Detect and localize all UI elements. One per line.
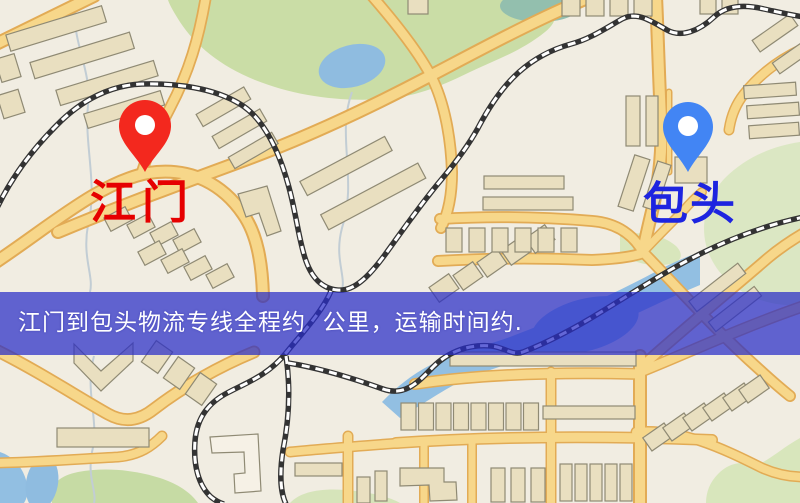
destination-label: 包头 (643, 177, 737, 230)
route-info-text: 江门到包头物流专线全程约 公里，运输时间约. (0, 292, 523, 355)
map-canvas: 江门 包头 (0, 0, 800, 503)
origin-label: 江门 (90, 175, 194, 229)
route-info-banner: 江门到包头物流专线全程约 公里，运输时间约. (0, 292, 800, 355)
map: 江门 包头 江门到包头物流专线全程约 公里，运输时间约. (0, 0, 800, 503)
